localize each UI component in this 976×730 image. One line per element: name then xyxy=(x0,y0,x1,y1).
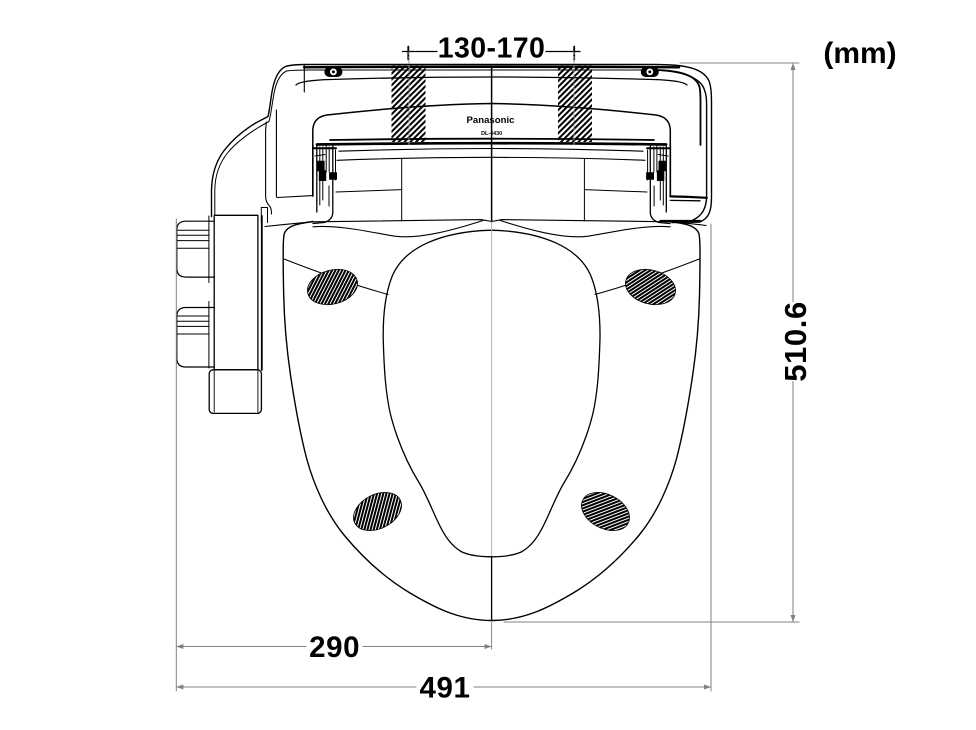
svg-text:130-170: 130-170 xyxy=(438,33,545,65)
svg-text:(mm): (mm) xyxy=(823,37,896,70)
svg-text:290: 290 xyxy=(309,631,360,664)
svg-text:491: 491 xyxy=(419,672,470,705)
svg-text:510.6: 510.6 xyxy=(778,301,813,382)
svg-text:Panasonic: Panasonic xyxy=(467,115,516,126)
